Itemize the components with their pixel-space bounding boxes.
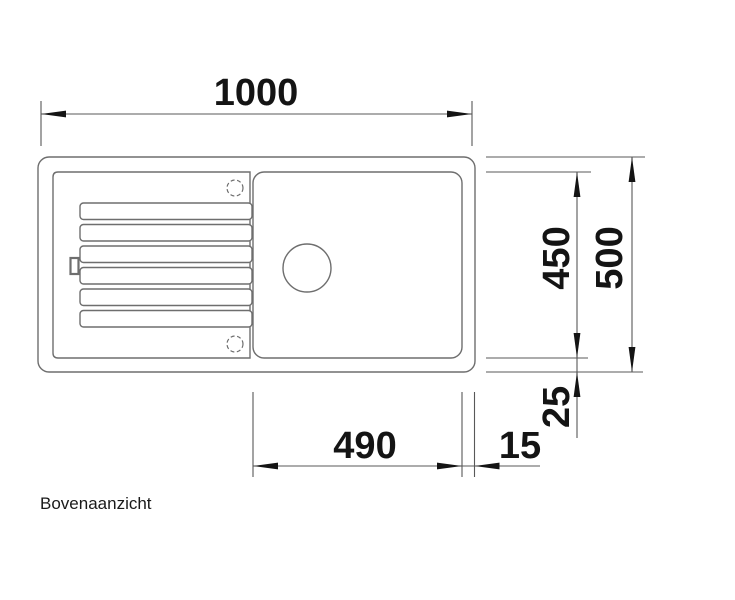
arrowhead-left	[253, 463, 278, 470]
arrowhead-left	[41, 111, 66, 118]
arrowhead-right	[447, 111, 472, 118]
drainboard-ridge	[80, 225, 252, 242]
drainboard-ridge	[80, 268, 252, 285]
arrowhead-up	[574, 172, 581, 197]
dimension-total-width: 1000	[41, 72, 472, 146]
dimension-label-bowl-width: 490	[333, 425, 396, 467]
arrowhead-right	[437, 463, 462, 470]
dimension-bowl: 490 15	[253, 392, 541, 477]
drainboard-ridge	[80, 203, 252, 220]
arrowhead-down	[629, 347, 636, 372]
drainboard-ridge	[80, 289, 252, 306]
dimension-label-total-width: 1000	[214, 72, 299, 114]
technical-drawing-page: 1000 450 500 25	[0, 0, 735, 600]
dimension-label-bottom-rim: 25	[536, 386, 578, 428]
sink-top-view-drawing: 1000 450 500 25	[0, 0, 735, 600]
dimension-label-inner-depth: 450	[536, 226, 578, 289]
drainboard-ridge	[80, 311, 252, 328]
drainboard-ridge	[80, 246, 252, 263]
sink-bowl	[253, 172, 462, 358]
dimension-depths: 450 500 25	[486, 157, 645, 438]
sink-body	[38, 157, 475, 372]
drainboard-rim	[53, 172, 250, 358]
arrowhead-left	[475, 463, 500, 470]
arrowhead-up	[629, 157, 636, 182]
dimension-label-right-rim: 15	[499, 425, 541, 467]
arrowhead-down	[574, 333, 581, 358]
dimension-label-total-depth: 500	[589, 226, 631, 289]
view-label: Bovenaanzicht	[40, 494, 152, 513]
